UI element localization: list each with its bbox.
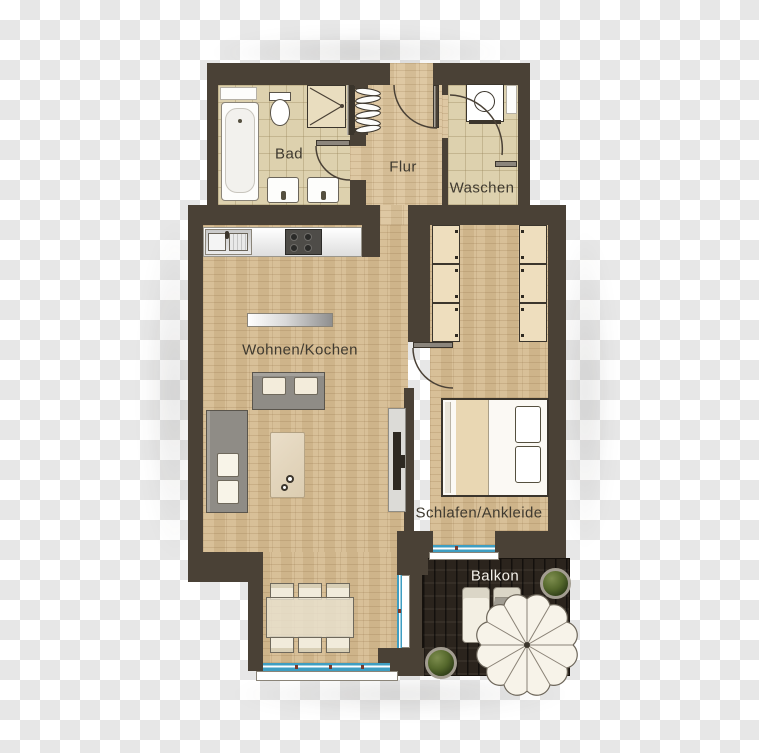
wardrobe (432, 264, 460, 303)
bed-footboard (445, 402, 451, 493)
burner (304, 233, 312, 241)
waschen-shelf (506, 85, 517, 114)
window-sill (256, 671, 398, 681)
room-label-bad: Bad (275, 146, 303, 163)
dining-chair (326, 636, 350, 653)
wardrobe (432, 303, 460, 342)
wall (207, 85, 218, 205)
washer-base (469, 120, 501, 124)
kitchen-sink-basin (208, 233, 226, 251)
sofa-cushion (262, 377, 286, 395)
room-label-flur: Flur (389, 159, 416, 176)
wall (433, 63, 530, 85)
sofa (252, 372, 325, 410)
floor-plan: Bad Flur Waschen Wohnen/Kochen Schlafen/… (0, 0, 759, 753)
wall (350, 180, 366, 205)
wall (410, 575, 422, 648)
coat-rack-rail (353, 86, 355, 133)
door-leaf-bad (316, 140, 350, 146)
wall (408, 205, 566, 225)
window-bedroom-south (433, 545, 495, 552)
window-divider (361, 665, 364, 669)
wall (495, 531, 566, 558)
wardrobe (519, 264, 547, 303)
tv-mount (398, 455, 405, 468)
kitchen-island (247, 313, 333, 327)
room-label-waschen: Waschen (450, 180, 515, 197)
bath-shelf (220, 87, 257, 100)
room-label-wohnen-kochen: Wohnen/Kochen (242, 342, 358, 359)
pillow (515, 406, 541, 443)
wardrobe (519, 225, 547, 264)
burner (290, 233, 298, 241)
dining-chair (298, 636, 322, 653)
wall (548, 225, 566, 531)
rug-object (281, 484, 288, 491)
sofa-cushion (217, 453, 239, 477)
pillow (515, 446, 541, 483)
washer-drum (474, 91, 495, 112)
washing-machine (466, 84, 504, 122)
faucet (321, 191, 326, 200)
kitchen-faucet (225, 231, 229, 239)
window-dining-south (263, 663, 390, 671)
window-sill (401, 575, 410, 648)
wall (248, 552, 263, 671)
door-leaf-bedroom (413, 342, 453, 348)
sofa-cushion (294, 377, 318, 395)
wall (518, 85, 530, 205)
bed-blanket (456, 400, 489, 495)
dining-chair (270, 636, 294, 653)
rug-object (286, 475, 294, 483)
plant (425, 647, 457, 679)
lounger (462, 587, 490, 643)
burner (304, 244, 312, 252)
dining-table (266, 597, 354, 638)
bed (441, 398, 549, 497)
wall (350, 135, 366, 146)
floor-flur-gap (380, 205, 408, 225)
door-leaf-waschen (495, 161, 517, 167)
wall (188, 205, 380, 225)
wall (207, 63, 390, 85)
wardrobe (519, 303, 547, 342)
bathroom-sink (267, 177, 299, 203)
wall (442, 85, 448, 95)
sofa-cushion (217, 480, 239, 504)
shower-tray (307, 85, 346, 128)
room-label-schlafen-ankleide: Schlafen/Ankleide (416, 505, 543, 522)
bathtub-drain (238, 119, 242, 123)
wall (408, 225, 430, 342)
burner (290, 244, 298, 252)
door-leaf-entry (433, 85, 439, 128)
wardrobe (432, 225, 460, 264)
window-divider (329, 665, 332, 669)
bathtub (221, 102, 259, 201)
window-divider (295, 665, 298, 669)
plant (540, 568, 571, 599)
window-divider (455, 546, 458, 550)
window-divider (398, 609, 401, 613)
bathroom-sink (307, 177, 339, 203)
sofa-chaise (206, 410, 248, 513)
kitchen-drainer (229, 233, 248, 251)
wall (188, 225, 203, 552)
window-sill (429, 552, 499, 560)
wall (442, 138, 448, 205)
wall (362, 225, 380, 257)
faucet (281, 191, 286, 200)
room-label-balkon: Balkon (471, 568, 519, 585)
toilet-bowl (270, 99, 290, 126)
